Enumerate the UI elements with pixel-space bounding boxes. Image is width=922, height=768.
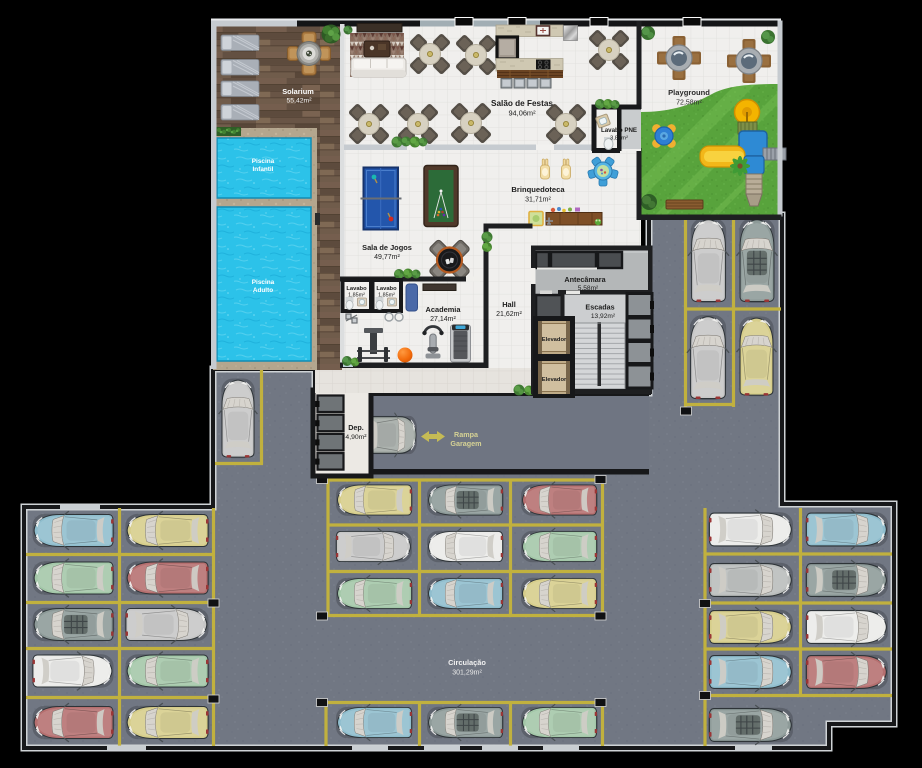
svg-text:94,06m²: 94,06m² bbox=[508, 109, 536, 118]
svg-text:Academia: Academia bbox=[426, 305, 462, 314]
svg-text:55,42m²: 55,42m² bbox=[287, 98, 313, 105]
svg-text:13,92m²: 13,92m² bbox=[591, 313, 616, 320]
svg-text:49,77m²: 49,77m² bbox=[374, 254, 400, 261]
svg-text:4,90m²: 4,90m² bbox=[345, 434, 367, 441]
svg-text:Lavabo: Lavabo bbox=[346, 286, 367, 292]
svg-text:21,62m²: 21,62m² bbox=[496, 311, 522, 318]
svg-text:Antecâmara: Antecâmara bbox=[564, 275, 606, 284]
svg-text:5,58m²: 5,58m² bbox=[578, 285, 599, 292]
svg-text:Playground: Playground bbox=[668, 88, 710, 97]
svg-text:Rampa: Rampa bbox=[454, 430, 479, 439]
svg-text:Lavabo PNE: Lavabo PNE bbox=[601, 127, 637, 134]
svg-text:Salão de Festas: Salão de Festas bbox=[491, 99, 553, 108]
svg-text:Circulação: Circulação bbox=[448, 658, 486, 667]
svg-text:72,58m²: 72,58m² bbox=[676, 100, 702, 107]
svg-text:31,71m²: 31,71m² bbox=[525, 197, 551, 204]
svg-text:301,29m²: 301,29m² bbox=[452, 670, 482, 677]
svg-text:Garagem: Garagem bbox=[450, 439, 481, 448]
svg-text:Lavabo: Lavabo bbox=[376, 286, 397, 292]
svg-text:Infantil: Infantil bbox=[253, 166, 274, 173]
svg-text:Elevador: Elevador bbox=[542, 377, 567, 383]
svg-text:1,85m²: 1,85m² bbox=[378, 293, 395, 299]
svg-text:Piscina: Piscina bbox=[252, 158, 275, 165]
svg-text:27,14m²: 27,14m² bbox=[430, 316, 456, 323]
svg-text:Piscina: Piscina bbox=[252, 279, 275, 286]
svg-text:Adulto: Adulto bbox=[253, 287, 273, 294]
svg-text:3,87m²: 3,87m² bbox=[610, 136, 628, 142]
svg-text:Dep.: Dep. bbox=[348, 423, 364, 432]
svg-text:1,85m²: 1,85m² bbox=[348, 293, 365, 299]
svg-text:Hall: Hall bbox=[502, 300, 516, 309]
svg-text:Escadas: Escadas bbox=[585, 303, 614, 312]
svg-text:Sala de Jogos: Sala de Jogos bbox=[362, 243, 412, 252]
svg-text:Brinquedoteca: Brinquedoteca bbox=[511, 185, 565, 194]
svg-text:Elevador: Elevador bbox=[542, 337, 567, 343]
svg-text:Solarium: Solarium bbox=[282, 87, 314, 96]
